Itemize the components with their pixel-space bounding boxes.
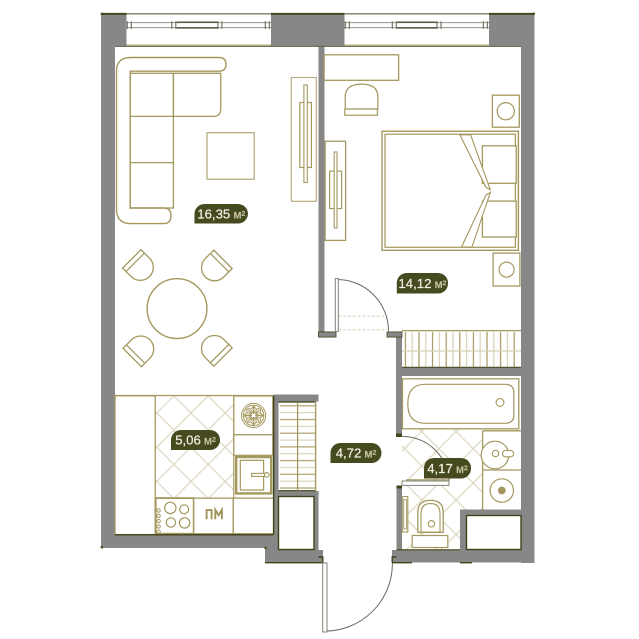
svg-text:4,72 м²: 4,72 м² xyxy=(336,446,377,461)
svg-text:4,17 м²: 4,17 м² xyxy=(427,461,468,476)
svg-text:5,06 м²: 5,06 м² xyxy=(175,433,216,448)
svg-text:16,35 м²: 16,35 м² xyxy=(197,206,245,221)
svg-text:14,12 м²: 14,12 м² xyxy=(398,276,446,291)
